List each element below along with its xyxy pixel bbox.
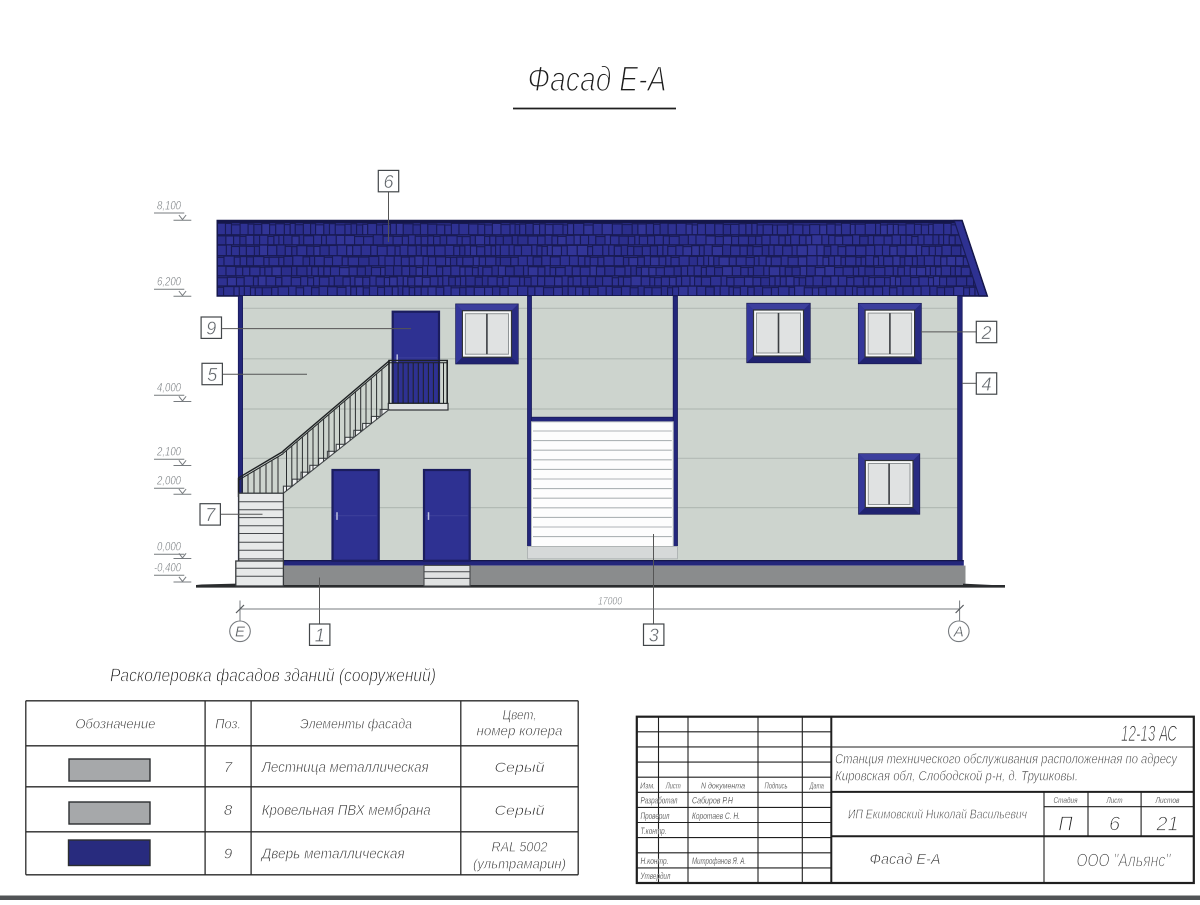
svg-text:6,200: 6,200: [157, 277, 182, 289]
svg-text:А: А: [953, 624, 964, 641]
svg-text:Поз.: Поз.: [215, 716, 241, 732]
svg-text:Серый: Серый: [495, 759, 545, 775]
svg-text:21: 21: [1155, 814, 1178, 836]
svg-text:Изм.: Изм.: [640, 781, 655, 790]
svg-text:Элементы фасада: Элементы фасада: [300, 716, 412, 732]
svg-text:Подпись: Подпись: [765, 781, 788, 790]
svg-text:Лист: Лист: [1106, 795, 1123, 805]
svg-text:Кровельная ПВХ мембрана: Кровельная ПВХ мембрана: [262, 803, 431, 819]
svg-text:Проверил: Проверил: [641, 811, 670, 821]
svg-text:Фасад Е-А: Фасад Е-А: [870, 852, 941, 868]
svg-text:Обозначение: Обозначение: [75, 716, 155, 732]
svg-text:1: 1: [315, 626, 325, 646]
svg-text:8,100: 8,100: [157, 201, 182, 213]
svg-text:Сабиров Р.Н: Сабиров Р.Н: [692, 796, 733, 806]
svg-text:Утвердил: Утвердил: [640, 871, 671, 881]
svg-text:2: 2: [980, 323, 991, 343]
svg-text:4,000: 4,000: [157, 383, 182, 395]
svg-text:(ультрамарин): (ультрамарин): [473, 856, 566, 872]
svg-text:Цвет,: Цвет,: [503, 707, 537, 723]
svg-text:Митрофанов Я. А.: Митрофанов Я. А.: [692, 856, 746, 866]
svg-text:Т.контр.: Т.контр.: [641, 826, 667, 836]
svg-text:Расколеровка фасадов зданий (с: Расколеровка фасадов зданий (сооружений): [110, 666, 436, 686]
svg-text:ИП Екимовский Николай Васильев: ИП Екимовский Николай Васильевич: [848, 807, 1027, 822]
svg-text:Фасад Е-А: Фасад Е-А: [528, 60, 667, 99]
svg-text:номер колера: номер колера: [477, 723, 563, 739]
svg-text:Коротаев С. Н.: Коротаев С. Н.: [692, 811, 740, 821]
svg-text:Е: Е: [235, 624, 246, 641]
svg-text:Лист: Лист: [665, 781, 681, 790]
svg-text:RAL 5002: RAL 5002: [492, 839, 548, 855]
svg-text:Кировская обл, Слободской р-н,: Кировская обл, Слободской р-н, д. Трушко…: [835, 769, 1078, 784]
svg-text:2,100: 2,100: [156, 447, 181, 459]
svg-text:7: 7: [205, 505, 216, 525]
svg-text:12-13 АС: 12-13 АС: [1121, 721, 1177, 746]
svg-text:9: 9: [224, 845, 233, 862]
svg-text:П: П: [1058, 814, 1073, 836]
svg-text:2,000: 2,000: [156, 476, 181, 488]
svg-text:Стадия: Стадия: [1054, 795, 1078, 805]
svg-text:Дата: Дата: [809, 781, 824, 790]
svg-text:6: 6: [1109, 814, 1121, 836]
svg-text:Серый: Серый: [495, 802, 545, 818]
svg-text:6: 6: [383, 172, 394, 192]
svg-text:5: 5: [207, 365, 218, 385]
svg-text:-0,400: -0,400: [154, 563, 181, 575]
svg-text:4: 4: [981, 374, 991, 394]
svg-text:Лестница металлическая: Лестница металлическая: [261, 760, 429, 776]
svg-text:8: 8: [224, 802, 233, 819]
svg-text:Листов: Листов: [1155, 795, 1180, 805]
svg-text:ООО "Альянс": ООО "Альянс": [1077, 851, 1172, 871]
svg-text:Н.контр.: Н.контр.: [641, 856, 669, 866]
svg-text:17000: 17000: [598, 596, 623, 608]
svg-text:N документа: N документа: [701, 781, 745, 790]
svg-text:3: 3: [649, 626, 659, 646]
svg-text:Станция технического обслужива: Станция технического обслуживания распол…: [835, 752, 1178, 767]
svg-text:0,000: 0,000: [157, 542, 182, 554]
svg-text:Дверь металлическая: Дверь металлическая: [260, 846, 405, 862]
svg-text:9: 9: [206, 319, 216, 339]
svg-text:7: 7: [224, 759, 233, 776]
svg-text:Разработал: Разработал: [641, 796, 678, 806]
